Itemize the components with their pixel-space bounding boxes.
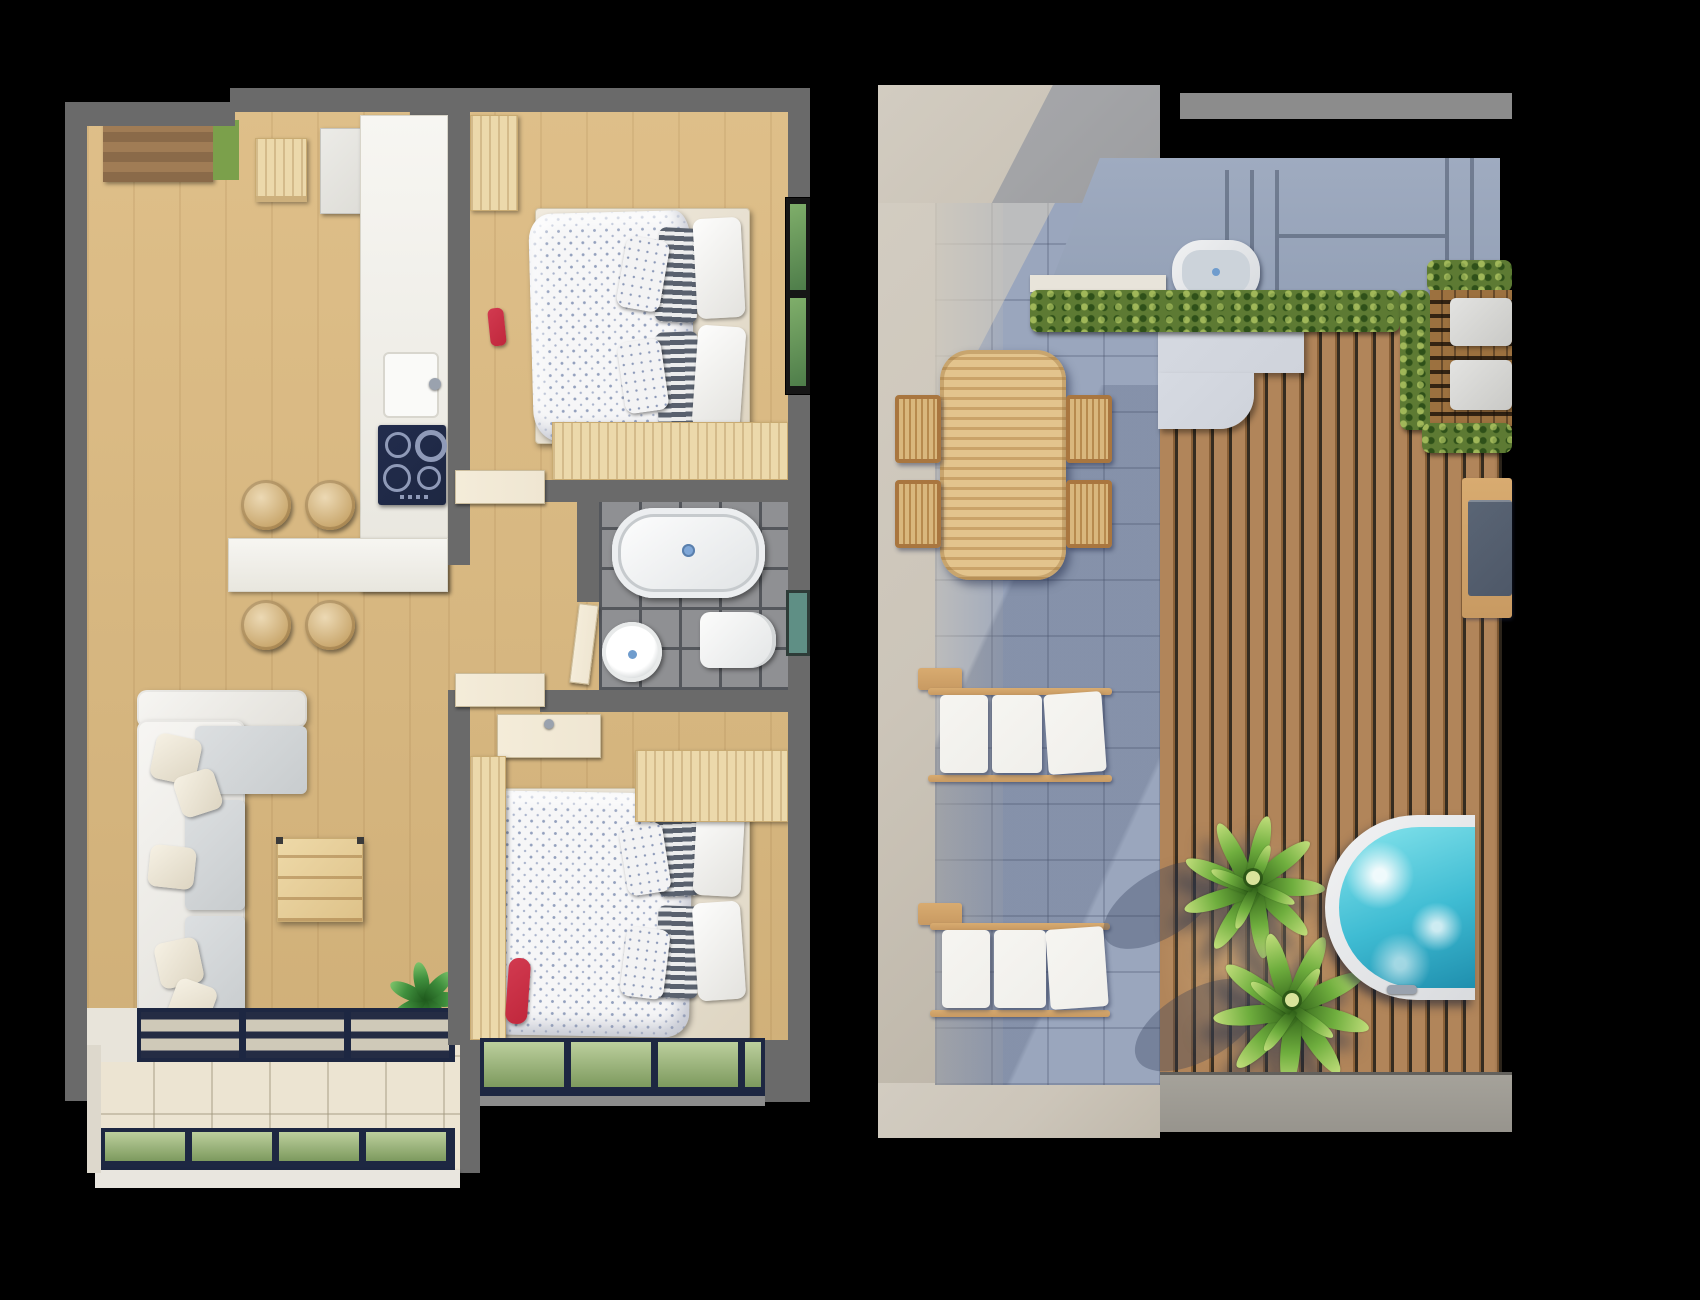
floorplan-terrace xyxy=(878,85,1512,1140)
bathroom-window xyxy=(786,590,810,656)
wall-left xyxy=(65,102,87,1101)
sun-lounger xyxy=(994,930,1046,1008)
dining-table xyxy=(940,350,1066,580)
terrace-wall-bottom xyxy=(878,1083,1160,1138)
dining-chair xyxy=(1066,395,1112,463)
entry-shelf xyxy=(255,138,307,202)
bedroom-balcony-railing xyxy=(480,1038,765,1096)
deck-bench xyxy=(1462,478,1512,618)
alcove-bench xyxy=(1450,298,1512,346)
balcony-edge xyxy=(95,1170,460,1188)
white-pillow xyxy=(692,324,747,429)
wall-bed2-corner xyxy=(760,1040,810,1102)
terrace-wall-left xyxy=(878,203,935,1087)
table-foot xyxy=(357,837,364,844)
burner xyxy=(415,430,447,462)
bedroom-window xyxy=(786,198,810,394)
balcony-side-wall xyxy=(87,1045,101,1173)
breakfast-bar xyxy=(228,538,448,592)
bar-stool xyxy=(305,480,355,530)
burner xyxy=(385,432,411,458)
parapet-strip xyxy=(1180,93,1512,119)
hot-tub-water xyxy=(1339,827,1475,988)
cabinet-bed1 xyxy=(470,115,518,211)
bar-stool xyxy=(241,600,291,650)
concrete-landing xyxy=(1158,373,1254,429)
white-pillow xyxy=(692,217,745,319)
wall-living-bed1 xyxy=(448,112,470,470)
bedroom-balcony-edge xyxy=(480,1096,765,1106)
wardrobe-bed1 xyxy=(552,422,788,480)
alcove-bench xyxy=(1450,360,1512,410)
wall-balcony-divider xyxy=(460,1040,480,1173)
cabinet-bed2 xyxy=(470,756,506,1040)
lounger-rail xyxy=(930,1010,1110,1017)
sun-lounger xyxy=(942,930,990,1008)
cooktop xyxy=(378,425,446,505)
cooktop-knobs xyxy=(400,495,428,499)
render-canvas xyxy=(0,0,1700,1300)
dining-chair xyxy=(895,395,941,463)
shower-drain xyxy=(682,544,695,557)
table-foot xyxy=(276,837,283,844)
entry-green-mat xyxy=(213,120,239,180)
sun-lounger xyxy=(992,695,1042,773)
hedge-planter xyxy=(1400,290,1430,430)
wall-bath-top xyxy=(540,480,810,502)
sun-lounger xyxy=(1043,691,1106,775)
floorplan-interior xyxy=(65,88,810,1193)
lounger-side-table xyxy=(918,903,962,925)
basin-drain xyxy=(628,650,637,659)
toilet xyxy=(700,612,776,668)
bar-stool xyxy=(241,480,291,530)
sun-lounger xyxy=(1045,926,1108,1010)
kitchen-faucet xyxy=(429,378,441,390)
concrete-ledge xyxy=(1160,1072,1512,1132)
lounger-side-table xyxy=(918,668,962,690)
shower-tray xyxy=(612,508,765,598)
washbasin xyxy=(602,622,662,682)
wall-top xyxy=(230,88,810,112)
balcony-railing xyxy=(101,1128,455,1170)
wall-bath-bottom xyxy=(540,690,810,712)
dining-chair xyxy=(1066,480,1112,548)
wall-living-bed2 xyxy=(448,690,470,1045)
wardrobe-bed2 xyxy=(635,750,788,822)
hedge-planter xyxy=(1422,423,1512,453)
bench-cushion xyxy=(1468,500,1512,596)
burner xyxy=(417,466,441,490)
hedge-planter xyxy=(1427,260,1512,292)
wall-bath-left xyxy=(577,502,599,602)
lounger-rail xyxy=(928,775,1112,782)
pony-wall-shelf xyxy=(455,673,545,707)
accent-cushion xyxy=(619,926,671,1001)
hedge-planter xyxy=(1030,290,1400,332)
sliding-glass-door xyxy=(137,1008,455,1062)
burner xyxy=(383,464,411,492)
dining-chair xyxy=(895,480,941,548)
wall-top-left xyxy=(65,102,235,126)
red-chair xyxy=(505,957,532,1024)
sun-lounger xyxy=(940,695,988,773)
hall-vanity xyxy=(497,714,601,758)
bar-stool xyxy=(305,600,355,650)
sofa-pillow xyxy=(147,844,197,891)
tub-drain xyxy=(1212,268,1220,276)
white-pillow xyxy=(692,900,747,1001)
hot-tub-fitting xyxy=(1387,985,1417,994)
pony-wall-shelf xyxy=(455,470,545,504)
coffee-table xyxy=(277,838,363,922)
vanity-faucet xyxy=(544,719,554,729)
